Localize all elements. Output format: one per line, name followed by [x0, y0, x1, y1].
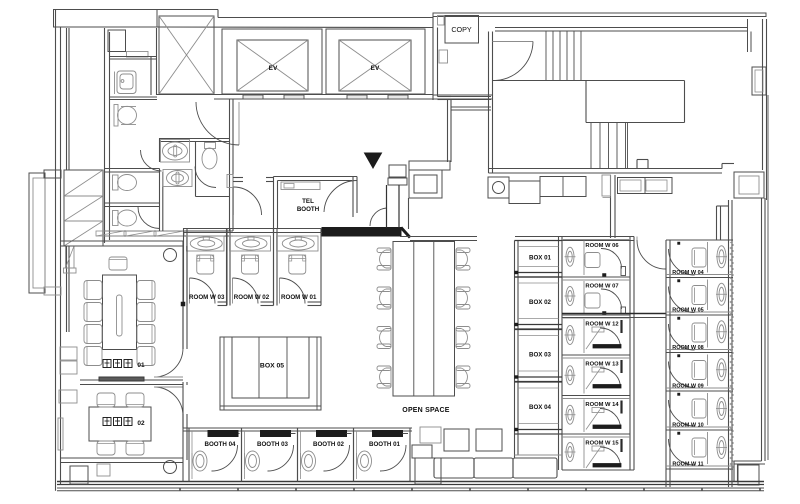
svg-text:BOOTH 04: BOOTH 04 [205, 441, 237, 448]
svg-text:BOX 05: BOX 05 [260, 363, 284, 370]
svg-text:ROOM W 09: ROOM W 09 [672, 384, 703, 390]
svg-text:ROOM W 05: ROOM W 05 [672, 308, 703, 314]
svg-text:ROOM W 10: ROOM W 10 [672, 423, 703, 429]
svg-text:02: 02 [137, 420, 145, 427]
svg-text:BOOTH 01: BOOTH 01 [369, 441, 401, 448]
svg-text:COPY: COPY [451, 25, 472, 34]
svg-text:ROOM W 01: ROOM W 01 [281, 294, 317, 301]
svg-text:ROOM W 03: ROOM W 03 [189, 294, 225, 301]
svg-text:ROOM W 02: ROOM W 02 [234, 294, 270, 301]
svg-text:ROOM W 04: ROOM W 04 [672, 270, 704, 276]
svg-text:BOX 01: BOX 01 [529, 255, 552, 262]
svg-text:TEL: TEL [302, 198, 314, 205]
svg-text:BOOTH: BOOTH [297, 206, 320, 213]
svg-text:OPEN SPACE: OPEN SPACE [402, 407, 450, 414]
svg-text:BOOTH 03: BOOTH 03 [257, 441, 289, 448]
svg-text:01: 01 [137, 362, 145, 369]
svg-text:BOX 04: BOX 04 [529, 404, 552, 411]
svg-text:BOOTH 02: BOOTH 02 [313, 441, 345, 448]
svg-text:ROOM W 08: ROOM W 08 [672, 345, 703, 351]
svg-text:BOX 03: BOX 03 [529, 351, 552, 358]
svg-text:EV: EV [269, 65, 278, 72]
svg-text:BOX 02: BOX 02 [529, 299, 552, 306]
svg-text:ROOM W 11: ROOM W 11 [672, 462, 703, 468]
svg-text:EV: EV [371, 65, 380, 72]
